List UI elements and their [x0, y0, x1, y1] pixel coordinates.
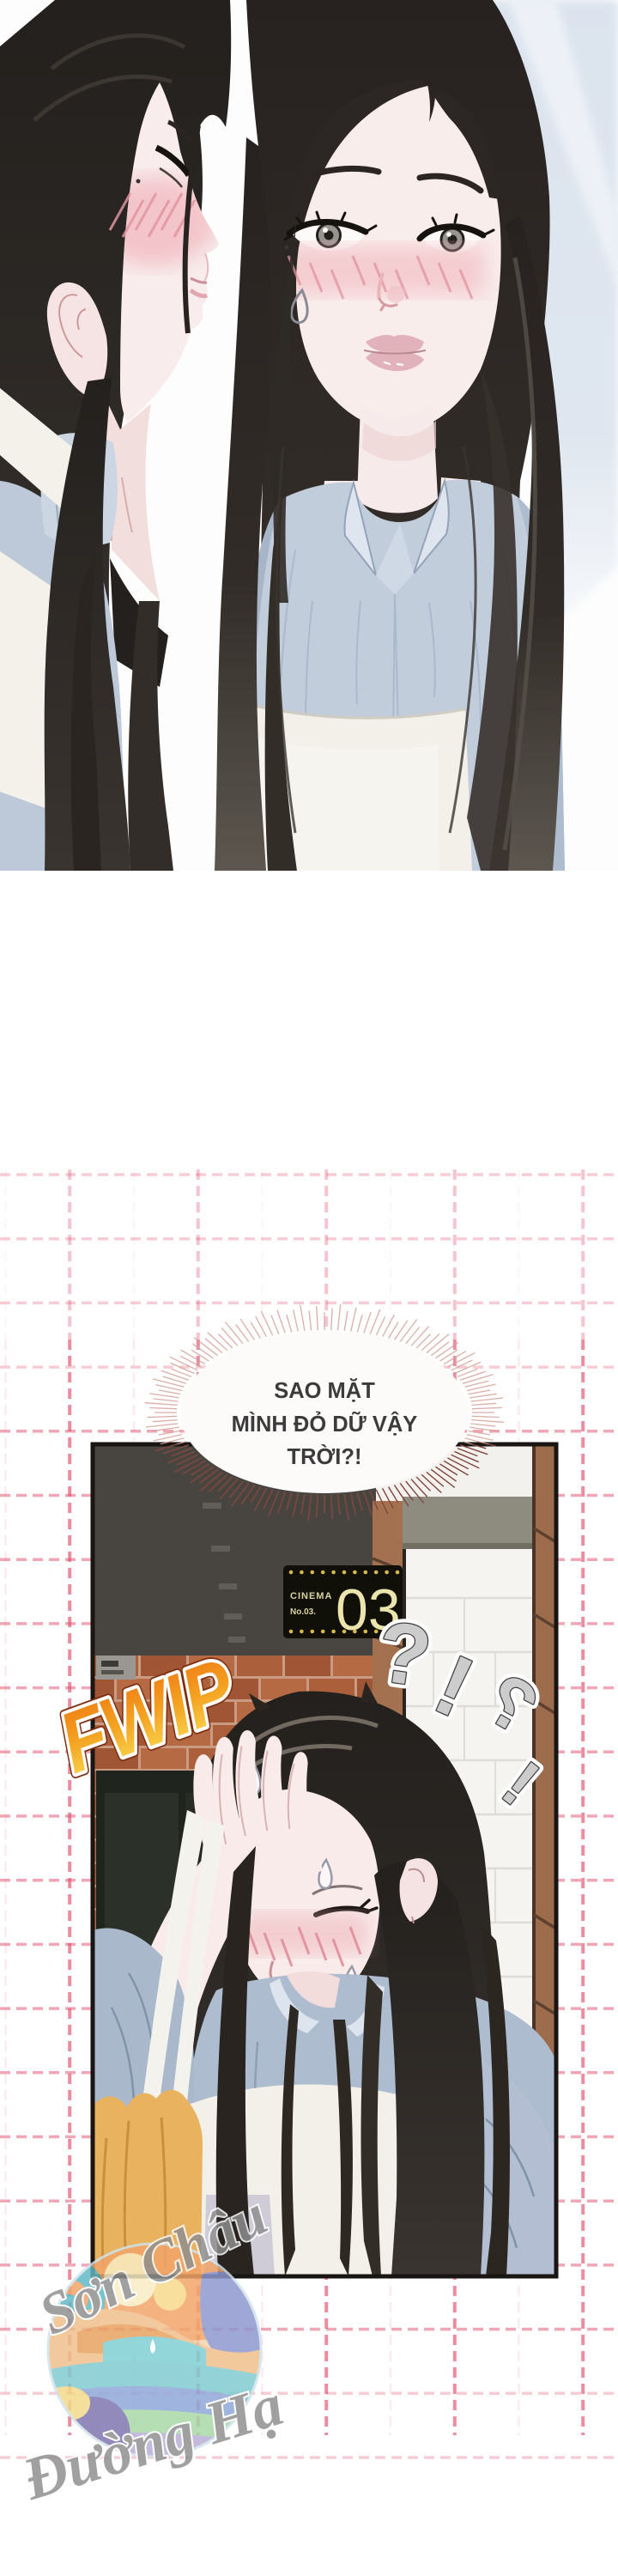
svg-text:TRỜI?!: TRỜI?! [288, 1443, 362, 1469]
svg-text:No.03.: No.03. [290, 1607, 316, 1617]
svg-text:CINEMA: CINEMA [290, 1591, 332, 1601]
svg-text:MÌNH ĐỎ DỮ VẬY: MÌNH ĐỎ DỮ VẬY [232, 1411, 418, 1437]
svg-text:SAO MẶT: SAO MẶT [274, 1378, 375, 1403]
